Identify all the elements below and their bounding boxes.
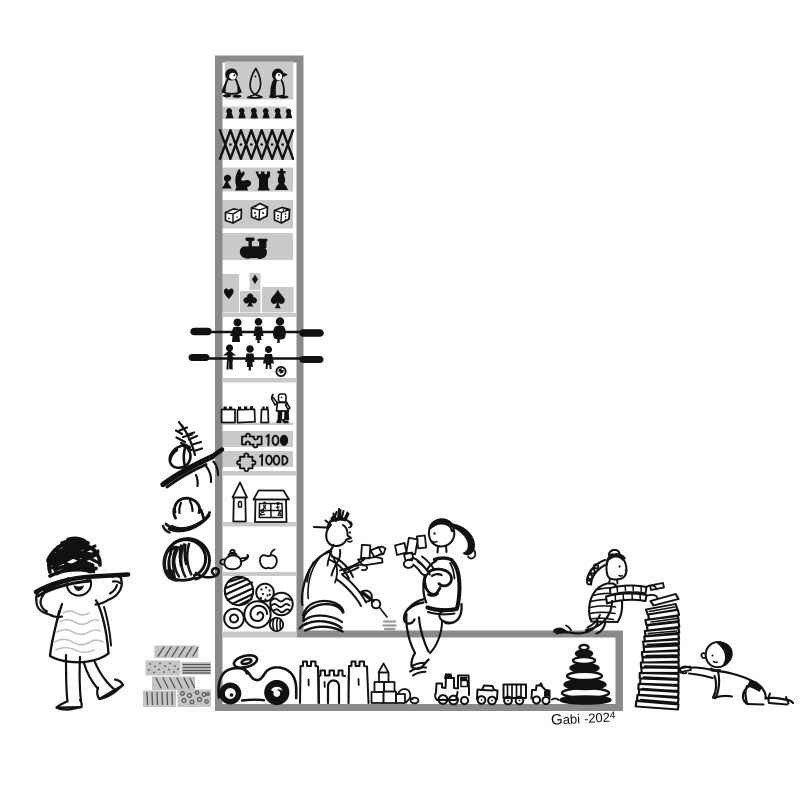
svg-text:Gabi -2024: Gabi -2024 [551,708,617,728]
